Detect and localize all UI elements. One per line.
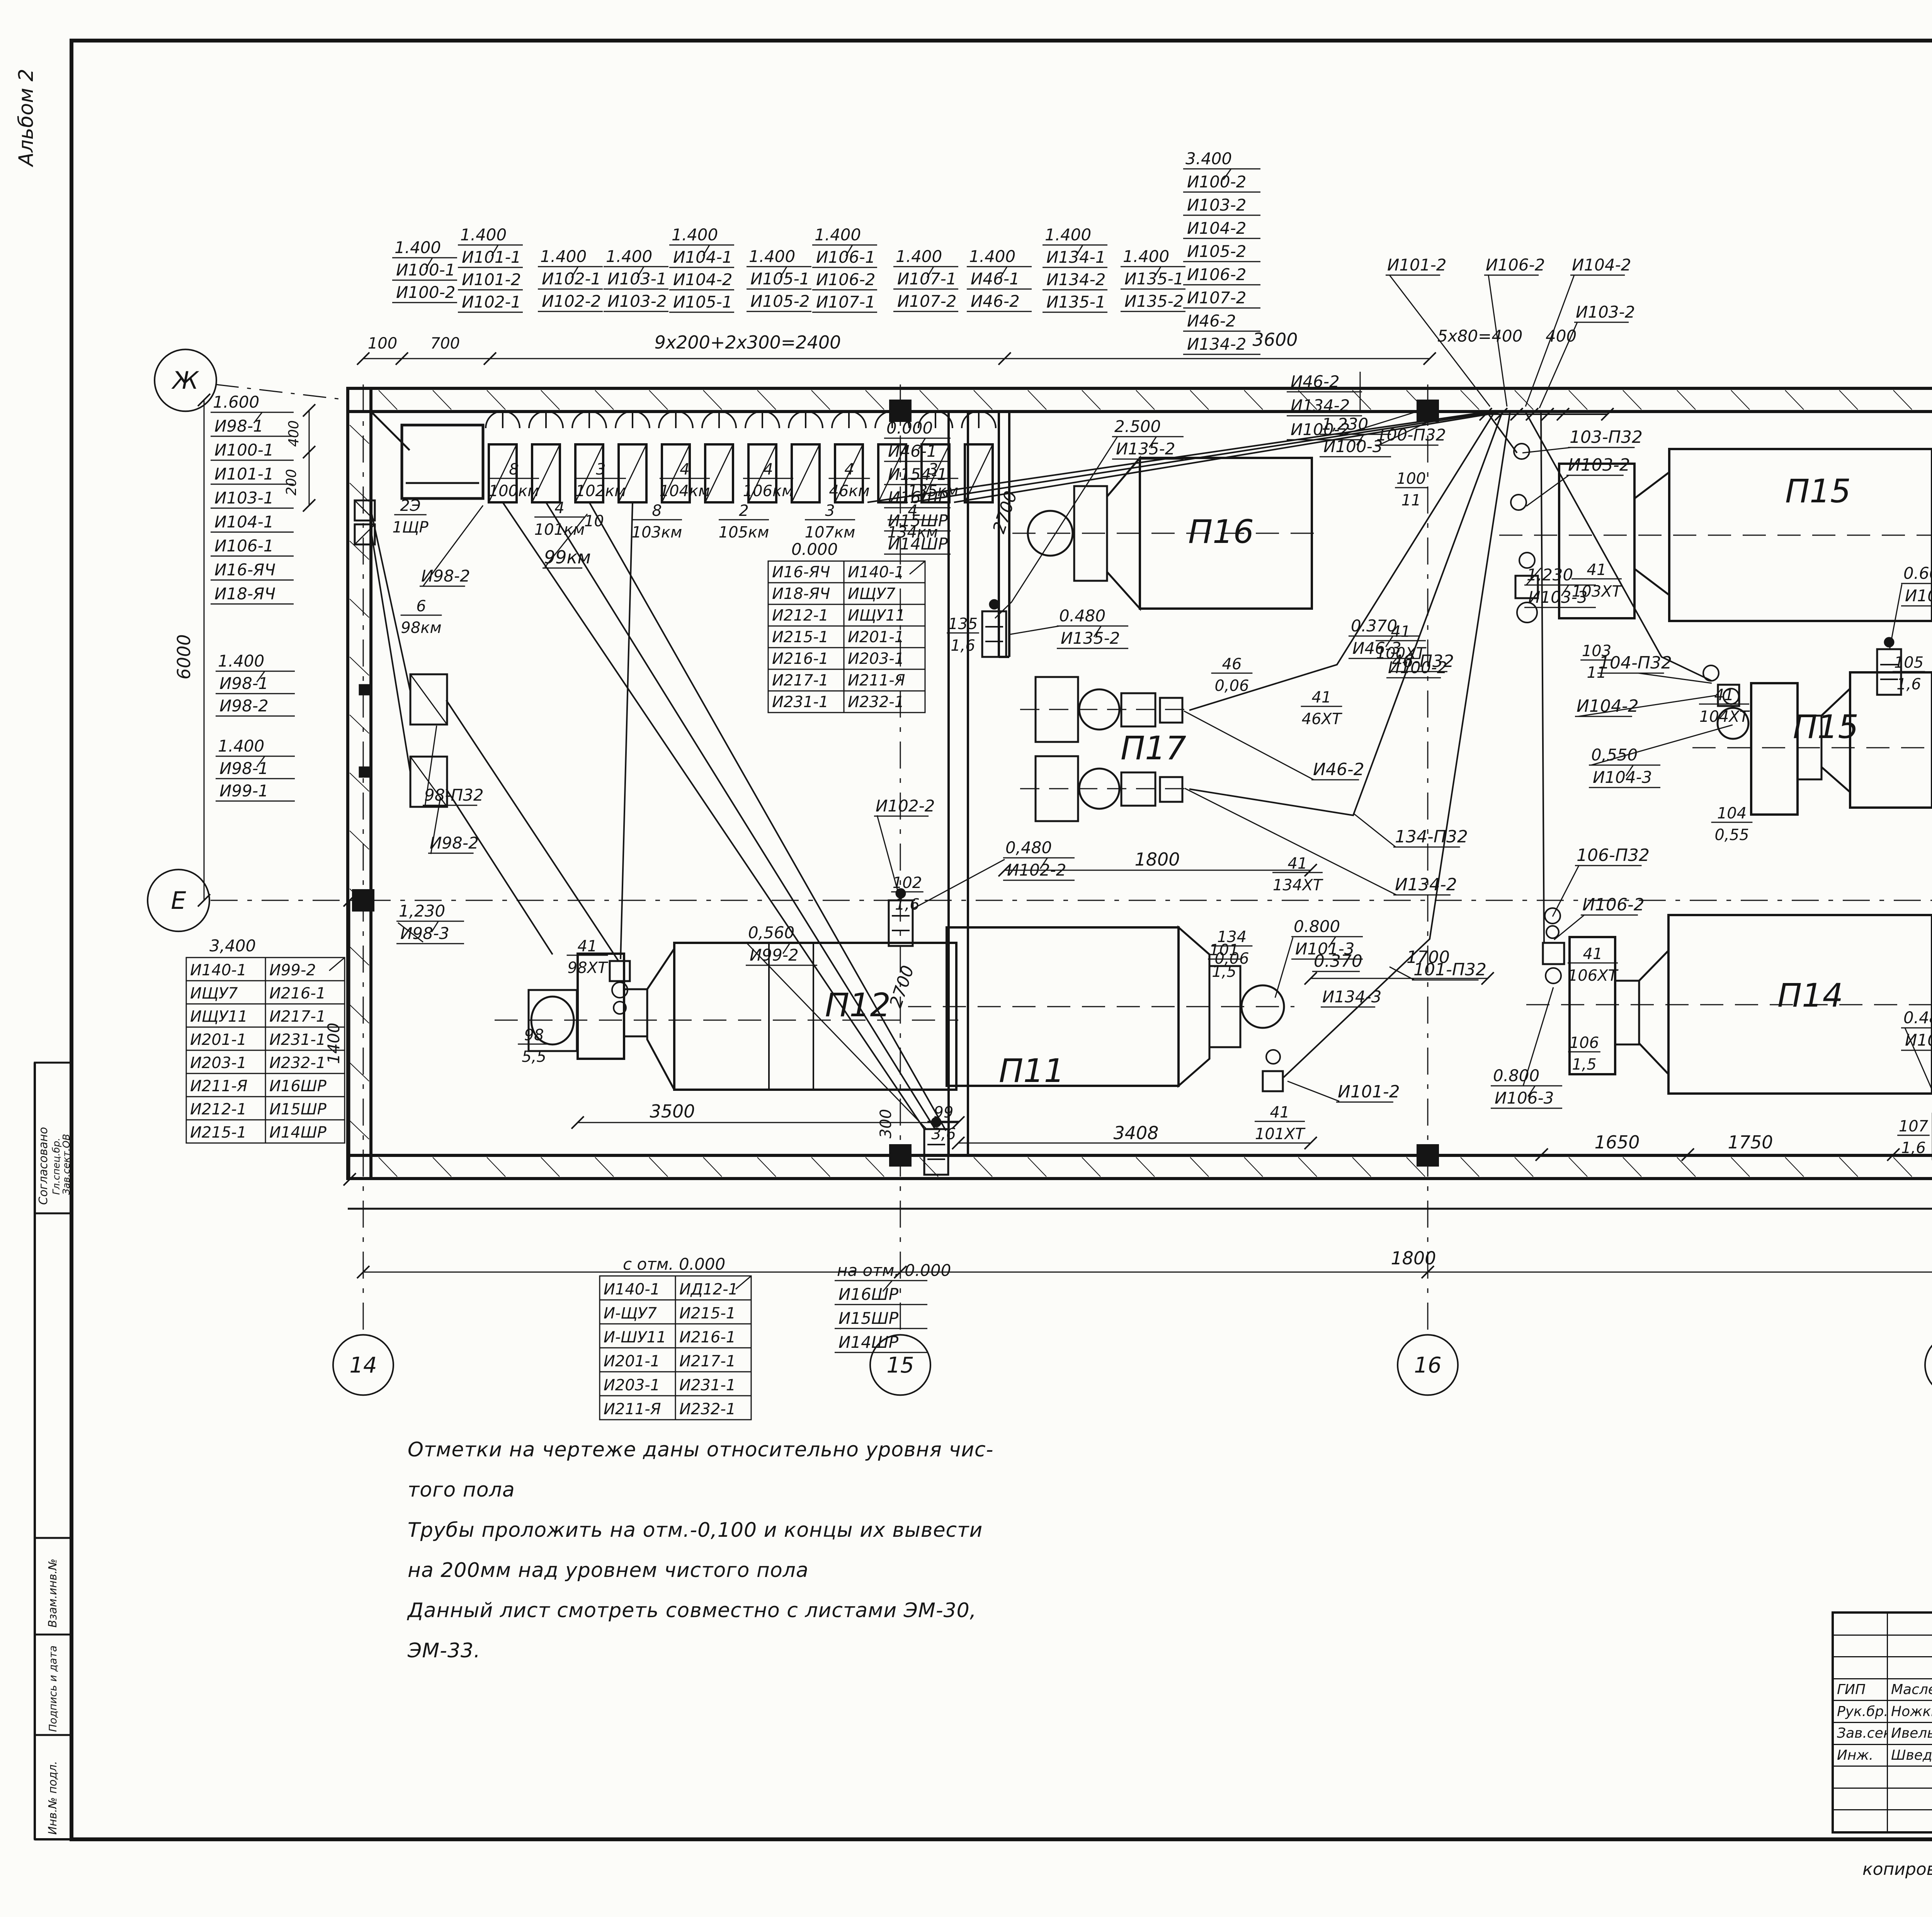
svg-text:И216-1: И216-1 — [772, 650, 828, 668]
svg-text:И102-2: И102-2 — [876, 796, 935, 815]
svg-text:101: 101 — [1209, 941, 1239, 959]
svg-text:И201-1: И201-1 — [604, 1352, 660, 1370]
svg-text:1650: 1650 — [1594, 1132, 1639, 1153]
svg-text:1.400: 1.400 — [460, 225, 507, 244]
svg-text:И14ШР: И14ШР — [888, 534, 948, 553]
svg-text:И104-2: И104-2 — [673, 270, 732, 289]
svg-text:П14: П14 — [1777, 976, 1843, 1014]
svg-text:0,06: 0,06 — [1214, 677, 1249, 695]
svg-text:на отм. 0.000: на отм. 0.000 — [837, 1261, 951, 1280]
svg-text:106км: 106км — [743, 482, 794, 500]
drawing-label: копировал — [1862, 1859, 1932, 1879]
svg-text:И-ЩУ7: И-ЩУ7 — [604, 1305, 657, 1322]
svg-text:4: 4 — [844, 461, 854, 478]
drawing-label: И134-2 — [1393, 875, 1457, 895]
svg-text:41: 41 — [1583, 945, 1603, 963]
svg-text:И46-1: И46-1 — [971, 269, 1020, 288]
role-label: Зав.сек. — [1834, 1723, 1888, 1744]
svg-text:И98-1: И98-1 — [219, 759, 269, 778]
svg-text:1,5: 1,5 — [1212, 963, 1236, 981]
svg-text:И99-2: И99-2 — [269, 961, 316, 979]
svg-text:П17: П17 — [1121, 729, 1186, 767]
svg-text:0.000: 0.000 — [791, 540, 838, 559]
svg-text:41: 41 — [1288, 855, 1308, 873]
svg-text:И134-2: И134-2 — [1291, 396, 1350, 415]
drawing-label: 1750 — [1728, 1132, 1773, 1153]
svg-text:И105-2: И105-2 — [750, 292, 810, 311]
svg-text:И140-1: И140-1 — [190, 961, 247, 979]
svg-text:И103-2: И103-2 — [1187, 196, 1246, 214]
svg-text:16: 16 — [1414, 1353, 1441, 1378]
label-list: 1.400И105-1И105-2 — [747, 247, 811, 311]
svg-text:И16ШР: И16ШР — [838, 1285, 899, 1304]
label-list: 1.600И98-1И100-1И101-1И103-1И104-1И106-1… — [211, 393, 294, 604]
axis-row-e: Е — [148, 869, 209, 931]
svg-text:И99-1: И99-1 — [219, 781, 269, 800]
svg-text:П11: П11 — [999, 1052, 1065, 1090]
svg-text:И134-2: И134-2 — [1046, 270, 1105, 289]
svg-text:400: 400 — [1546, 327, 1577, 345]
svg-text:И106-1: И106-1 — [816, 248, 875, 267]
svg-text:4: 4 — [554, 499, 564, 517]
drawing-label: 100 — [368, 335, 397, 352]
label-list: 1.400И100-1И100-2 — [392, 238, 457, 303]
fraction-label: 41106ХТ — [1568, 945, 1619, 985]
svg-text:И105-1: И105-1 — [673, 293, 732, 311]
svg-text:ИЩУ7: ИЩУ7 — [848, 585, 896, 603]
svg-text:ИЩУ7: ИЩУ7 — [190, 985, 238, 1002]
svg-text:И217-1: И217-1 — [269, 1008, 326, 1026]
label-list: 0,480И102-2 — [1003, 838, 1075, 880]
drawing-label: 2700 — [886, 963, 918, 1010]
svg-text:И14ШР: И14ШР — [269, 1124, 327, 1141]
fraction-label: 698км — [401, 597, 442, 637]
svg-text:И106-3: И106-3 — [1495, 1089, 1554, 1107]
label-list: 1.400И134-1И134-2И135-1 — [1043, 225, 1107, 312]
svg-text:1ЩР: 1ЩР — [392, 519, 429, 536]
svg-text:И101-2: И101-2 — [462, 270, 521, 289]
svg-text:И46-3: И46-3 — [1352, 639, 1401, 658]
drawing-label: И101-2 — [1386, 255, 1446, 275]
cable-runs — [372, 412, 1712, 1131]
svg-text:Гл.спец.бр.: Гл.спец.бр. — [51, 1138, 62, 1195]
drawing-label: И103-2 — [1574, 303, 1635, 322]
svg-text:И106-1: И106-1 — [214, 536, 274, 555]
svg-text:И100-1: И100-1 — [396, 260, 455, 279]
svg-text:И105-2: И105-2 — [1187, 242, 1246, 261]
fraction-label: 41101ХТ — [1255, 1104, 1306, 1143]
svg-text:И215-1: И215-1 — [679, 1305, 736, 1322]
svg-text:104км: 104км — [660, 482, 710, 500]
svg-text:И135-1: И135-1 — [1046, 293, 1105, 311]
fraction-label: 4106км — [743, 461, 794, 500]
svg-text:6000: 6000 — [173, 634, 194, 679]
svg-text:1,230: 1,230 — [1527, 565, 1573, 584]
svg-text:14: 14 — [349, 1353, 377, 1378]
svg-text:107: 107 — [1899, 1118, 1929, 1135]
role-name: Ивельская — [1888, 1723, 1932, 1744]
svg-text:И103-1: И103-1 — [607, 269, 667, 288]
svg-text:Зав.сект.ОВ: Зав.сект.ОВ — [61, 1134, 72, 1195]
svg-text:0.480: 0.480 — [1059, 606, 1105, 625]
svg-text:И101-1: И101-1 — [462, 248, 521, 267]
svg-text:3,400: 3,400 — [209, 936, 256, 955]
svg-text:Инв.№ подл.: Инв.№ подл. — [46, 1761, 59, 1835]
svg-text:И106-2: И106-2 — [1486, 255, 1545, 274]
drawing-label: 134-П32 — [1393, 827, 1468, 847]
drawing-label: 3600 — [1252, 329, 1298, 350]
svg-text:1,230: 1,230 — [399, 902, 445, 920]
svg-text:1.400: 1.400 — [749, 247, 795, 266]
drawing-label: И104-2 — [1570, 255, 1631, 275]
drawing-label: 1400 — [324, 1023, 343, 1064]
fraction-label: 1061,5 — [1568, 1034, 1600, 1073]
note-line: на 200мм над уровнем чистого пола — [408, 1550, 1393, 1590]
svg-text:134-П32: 134-П32 — [1395, 827, 1468, 847]
svg-text:104: 104 — [1717, 805, 1747, 822]
svg-text:0,55: 0,55 — [1714, 826, 1749, 844]
machine-label-p14: П14 — [1777, 976, 1843, 1014]
svg-text:4: 4 — [763, 461, 773, 478]
svg-text:4: 4 — [680, 461, 689, 478]
svg-text:41: 41 — [1714, 686, 1734, 704]
svg-text:1,6: 1,6 — [951, 637, 975, 655]
axis-col-14: 14 — [333, 1335, 393, 1395]
drawing-label: 6000 — [173, 634, 194, 679]
label-list: 0.800И101-3 — [1291, 917, 1363, 959]
role-label: ГИП — [1834, 1679, 1888, 1700]
svg-text:5,5: 5,5 — [522, 1048, 546, 1066]
drawing-label: 5х80=400 — [1437, 327, 1522, 345]
svg-text:2700: 2700 — [886, 963, 918, 1010]
svg-text:И98-1: И98-1 — [219, 674, 269, 693]
svg-text:И15ШР: И15ШР — [888, 511, 948, 530]
svg-text:0.600: 0.600 — [1903, 564, 1932, 583]
svg-text:106-П32: 106-П32 — [1577, 845, 1650, 865]
svg-text:И106-2: И106-2 — [1187, 265, 1246, 284]
role-name: Масленников — [1888, 1679, 1932, 1700]
svg-text:И107-2: И107-2 — [1187, 288, 1246, 307]
svg-text:И203-1: И203-1 — [848, 650, 904, 668]
axis-row-zh: Ж — [155, 349, 216, 411]
svg-text:И103-3: И103-3 — [1528, 588, 1587, 607]
fraction-label: 2105км — [719, 502, 769, 541]
svg-text:1.400: 1.400 — [218, 737, 264, 755]
svg-text:46: 46 — [1222, 655, 1242, 673]
dimension-lines — [198, 352, 1932, 1278]
label-list: 1.400И103-1И103-2 — [604, 247, 668, 311]
drawing-label: 103-П32 — [1568, 427, 1643, 447]
svg-text:Согласовано: Согласовано — [37, 1127, 50, 1205]
svg-text:И104-1: И104-1 — [214, 512, 274, 531]
svg-text:И135-1: И135-1 — [1124, 269, 1184, 288]
label-list: 0,560И99-2 — [746, 923, 817, 965]
svg-text:И211-Я: И211-Я — [604, 1400, 661, 1418]
svg-text:Подпись и дата: Подпись и дата — [47, 1645, 59, 1732]
fraction-label: 985,5 — [518, 1026, 550, 1066]
svg-text:98: 98 — [524, 1026, 544, 1044]
svg-text:И103-2: И103-2 — [1576, 303, 1635, 321]
svg-text:Альбом 2: Альбом 2 — [15, 69, 38, 167]
svg-text:1.400: 1.400 — [896, 247, 942, 266]
fraction-label: 41134ХТ — [1272, 855, 1324, 894]
svg-text:103: 103 — [1582, 642, 1611, 660]
fraction-label: 4104км — [660, 461, 710, 500]
svg-text:0,480: 0,480 — [1005, 838, 1052, 857]
svg-text:101-П32: 101-П32 — [1413, 960, 1486, 980]
svg-text:104ХТ: 104ХТ — [1699, 708, 1750, 726]
svg-text:И46-2: И46-2 — [1187, 311, 1236, 330]
svg-text:И101-2: И101-2 — [1387, 255, 1446, 274]
svg-text:3408: 3408 — [1113, 1123, 1158, 1143]
drawing-label: 700 — [430, 335, 460, 352]
role-name: Шведова — [1888, 1745, 1932, 1766]
fraction-label: 10011 — [1395, 470, 1427, 509]
drawing-label: Зав.сект.ОВ — [61, 1134, 72, 1195]
svg-text:И106-2: И106-2 — [816, 270, 875, 289]
svg-text:И100-2: И100-2 — [1187, 172, 1246, 191]
svg-text:И98-2: И98-2 — [421, 566, 470, 585]
album-note: Альбом 2 — [15, 69, 38, 167]
svg-text:И98-2: И98-2 — [219, 696, 269, 715]
svg-text:0.480: 0.480 — [1903, 1008, 1932, 1027]
svg-text:98км: 98км — [401, 619, 441, 637]
fraction-label: 4101км — [534, 499, 585, 539]
label-list: 1.400И98-1И98-2 — [216, 651, 295, 716]
svg-text:И104-1: И104-1 — [673, 248, 732, 267]
note-line: Трубы проложить на отм.-0,100 и концы их… — [408, 1510, 1393, 1550]
svg-text:3,6: 3,6 — [931, 1125, 956, 1143]
svg-text:И134-1: И134-1 — [1046, 248, 1105, 267]
svg-text:9х200+2х300=2400: 9х200+2х300=2400 — [655, 332, 841, 353]
svg-text:И104-2: И104-2 — [1577, 696, 1639, 716]
svg-text:0,550: 0,550 — [1591, 745, 1638, 764]
svg-text:П15: П15 — [1785, 472, 1851, 510]
svg-text:0.800: 0.800 — [1493, 1066, 1539, 1085]
role-name: Ножкин — [1888, 1701, 1932, 1722]
svg-text:И101-2: И101-2 — [1338, 1082, 1400, 1102]
svg-text:2.500: 2.500 — [1114, 417, 1161, 436]
svg-text:П12: П12 — [825, 986, 891, 1024]
label-list: 1.400И46-1И46-2 — [967, 247, 1032, 311]
svg-text:И134-3: И134-3 — [1322, 987, 1381, 1006]
svg-text:И231-1: И231-1 — [269, 1031, 326, 1049]
svg-text:И135-2: И135-2 — [1116, 439, 1175, 458]
label-list: 0,550И104-3 — [1589, 745, 1660, 788]
svg-text:И18-ЯЧ: И18-ЯЧ — [772, 585, 830, 603]
label-list: 1.400И106-1И106-2И107-1 — [812, 225, 877, 312]
drawing-label: 98-П32 — [423, 786, 484, 805]
drawing-label: 200 — [284, 469, 299, 496]
drawing-label: 3408 — [1113, 1123, 1158, 1143]
svg-text:98-П32: 98-П32 — [424, 786, 484, 805]
drawing-label: И98-2 — [428, 833, 479, 853]
drawing-label: И106-2 — [1484, 255, 1545, 275]
svg-text:1.400: 1.400 — [606, 247, 652, 266]
svg-text:105: 105 — [1894, 654, 1923, 672]
svg-text:300: 300 — [877, 1109, 895, 1138]
svg-text:И216-1: И216-1 — [269, 985, 326, 1002]
svg-text:1750: 1750 — [1728, 1132, 1773, 1153]
fraction-label: 460,06 — [1211, 655, 1253, 695]
svg-text:1,6: 1,6 — [1896, 675, 1921, 693]
axis-col-17: 17 — [1925, 1335, 1932, 1395]
svg-text:И98-2: И98-2 — [430, 833, 479, 852]
machines — [359, 444, 1932, 1175]
svg-text:102: 102 — [893, 874, 922, 892]
label-list: 2.500И135-2 — [1112, 417, 1184, 459]
svg-text:И135-2: И135-2 — [1061, 629, 1120, 648]
svg-text:копировал: копировал — [1862, 1859, 1932, 1879]
svg-text:1.600: 1.600 — [213, 393, 259, 412]
svg-text:11: 11 — [1401, 492, 1421, 509]
drawing-label: И98-2 — [420, 566, 470, 586]
svg-text:107км: 107км — [805, 524, 855, 541]
role-label: Инж. — [1834, 1745, 1888, 1766]
fraction-label: 1071,6 — [1897, 1118, 1930, 1157]
svg-text:И16ШР: И16ШР — [269, 1077, 327, 1095]
fraction-label: 4146ХТ — [1301, 689, 1343, 728]
svg-text:И15ШР: И15ШР — [838, 1309, 899, 1328]
drawing-label: 106-П32 — [1575, 845, 1650, 866]
machine-label-p15b: П15 — [1793, 708, 1859, 746]
machine-label-p12: П12 — [825, 986, 891, 1024]
svg-text:1.400: 1.400 — [218, 651, 264, 670]
drawing-label: И103-2 — [1566, 455, 1630, 475]
svg-text:101ХТ: 101ХТ — [1255, 1125, 1306, 1143]
svg-text:И104-3: И104-3 — [1593, 768, 1652, 787]
svg-text:1,6: 1,6 — [895, 896, 920, 913]
svg-text:8: 8 — [509, 461, 519, 478]
svg-text:И100-3: И100-3 — [1323, 437, 1383, 456]
svg-text:И46-2: И46-2 — [971, 292, 1020, 311]
svg-text:И102-2: И102-2 — [1007, 861, 1066, 879]
svg-text:И105-2: И105-2 — [1905, 586, 1932, 605]
svg-text:105км: 105км — [719, 524, 769, 541]
svg-text:И103-1: И103-1 — [214, 488, 274, 507]
svg-text:И217-1: И217-1 — [679, 1352, 736, 1370]
svg-text:И103-2: И103-2 — [607, 292, 667, 311]
svg-text:И101-3: И101-3 — [1295, 939, 1354, 958]
svg-text:99: 99 — [934, 1104, 954, 1121]
label-list: 1.400И98-1И99-1 — [216, 737, 295, 801]
svg-text:Взам.инв.№: Взам.инв.№ — [46, 1559, 59, 1628]
label-list: 3.400И100-2И103-2И104-2И105-2И106-2И107-… — [1183, 149, 1260, 354]
drawing-label: 100-П32 — [1375, 425, 1446, 445]
svg-text:100км: 100км — [489, 482, 539, 500]
svg-text:И100-1: И100-1 — [214, 441, 274, 459]
svg-text:И102-2: И102-2 — [542, 292, 601, 311]
svg-text:И211-Я: И211-Я — [190, 1077, 248, 1095]
svg-text:И14ШР: И14ШР — [838, 1333, 899, 1352]
drawing-label: И101-2 — [1336, 1082, 1400, 1102]
svg-text:1.400: 1.400 — [969, 247, 1015, 266]
svg-text:3: 3 — [596, 461, 605, 478]
svg-text:И134-2: И134-2 — [1395, 875, 1457, 895]
svg-text:1.400: 1.400 — [1123, 247, 1169, 266]
svg-text:Е: Е — [171, 886, 186, 915]
drawing-label: Инв.№ подл. — [46, 1761, 59, 1835]
drawing-label: 400 — [1546, 327, 1577, 345]
label-table: с отм. 0.000И140-1ИД12-1И-ЩУ7И215-1И-ШУ1… — [600, 1255, 751, 1420]
svg-text:0.370: 0.370 — [1351, 616, 1397, 635]
svg-text:И102-1: И102-1 — [462, 293, 521, 311]
fraction-label: 4198ХТ — [567, 937, 609, 977]
svg-text:0.800: 0.800 — [1294, 917, 1340, 936]
drawing-label: 99км — [543, 547, 591, 568]
svg-text:И101-1: И101-1 — [214, 464, 274, 483]
machine-label-p16: П16 — [1188, 513, 1254, 551]
svg-text:И216-1: И216-1 — [679, 1328, 736, 1346]
svg-text:1,5: 1,5 — [1572, 1056, 1597, 1073]
svg-text:1800: 1800 — [1391, 1248, 1436, 1269]
machine-label-p15: П15 — [1785, 472, 1851, 510]
svg-text:И46-2: И46-2 — [1291, 372, 1340, 391]
svg-text:И16-ЯЧ: И16-ЯЧ — [214, 560, 276, 579]
svg-text:2: 2 — [739, 502, 748, 520]
svg-text:И212-1: И212-1 — [772, 607, 828, 624]
svg-text:41: 41 — [1587, 561, 1607, 579]
svg-text:И140-1: И140-1 — [604, 1281, 660, 1298]
signature-table: ГИП Масленников Рук.бр. Ножкин Зав.сек. … — [1834, 1614, 1932, 1831]
svg-text:103-П32: 103-П32 — [1570, 427, 1643, 447]
svg-text:46км: 46км — [829, 482, 869, 500]
drawing-label: 10 — [584, 512, 604, 530]
note-line: Данный лист смотреть совместно с листами… — [408, 1590, 1393, 1631]
svg-text:И107-1: И107-1 — [897, 269, 956, 288]
drawing-sheet: 50Альбом 2ЖЕ141516171007009х200+2х300=24… — [0, 0, 1932, 1917]
svg-text:41: 41 — [1270, 1104, 1290, 1121]
svg-text:И98-3: И98-3 — [400, 924, 449, 943]
svg-text:Ж: Ж — [171, 366, 199, 395]
title-block: ГИП Масленников Рук.бр. Ножкин Зав.сек. … — [1832, 1611, 1932, 1834]
label-list: 0.480И135-2 — [1057, 606, 1128, 648]
drawing-label: 400 — [286, 420, 302, 447]
note-line: того пола — [408, 1470, 1393, 1510]
label-list: 1,230И98-3 — [396, 902, 464, 944]
svg-text:И-ШУ11: И-ШУ11 — [604, 1328, 666, 1346]
drawing-label: Взам.инв.№ — [46, 1559, 59, 1628]
fraction-label: 1351,6 — [947, 615, 979, 655]
drawing-label: И104-2 — [1575, 696, 1639, 716]
svg-text:И46-2: И46-2 — [1313, 760, 1364, 779]
svg-text:И211-Я: И211-Я — [848, 672, 905, 689]
machine-label-p11: П11 — [999, 1052, 1065, 1090]
svg-text:И107-1: И107-1 — [816, 293, 875, 311]
svg-text:И100-2: И100-2 — [396, 283, 455, 302]
svg-text:И232-1: И232-1 — [269, 1054, 326, 1072]
svg-text:И201-1: И201-1 — [848, 628, 904, 646]
svg-text:135: 135 — [948, 615, 978, 633]
fraction-label: 1040,55 — [1711, 805, 1753, 844]
svg-text:И46-1: И46-1 — [888, 442, 937, 461]
svg-text:2Э: 2Э — [400, 497, 420, 515]
svg-text:И212-1: И212-1 — [190, 1101, 247, 1118]
svg-text:41: 41 — [578, 937, 597, 955]
drawing-label: И134-3 — [1321, 987, 1381, 1007]
fraction-label: 8103км — [632, 502, 682, 541]
drawing-label: И106-2 — [1581, 895, 1645, 915]
svg-text:И105-1: И105-1 — [750, 269, 810, 288]
svg-text:1,230: 1,230 — [1322, 415, 1368, 434]
svg-text:И215-1: И215-1 — [190, 1124, 247, 1141]
svg-text:И232-1: И232-1 — [848, 693, 904, 711]
svg-text:И99-2: И99-2 — [750, 946, 799, 964]
svg-text:с отм. 0.000: с отм. 0.000 — [623, 1255, 725, 1274]
drawing-label: 1800 — [1391, 1248, 1436, 1269]
drawing-label: 1650 — [1594, 1132, 1639, 1153]
svg-text:700: 700 — [430, 335, 460, 352]
